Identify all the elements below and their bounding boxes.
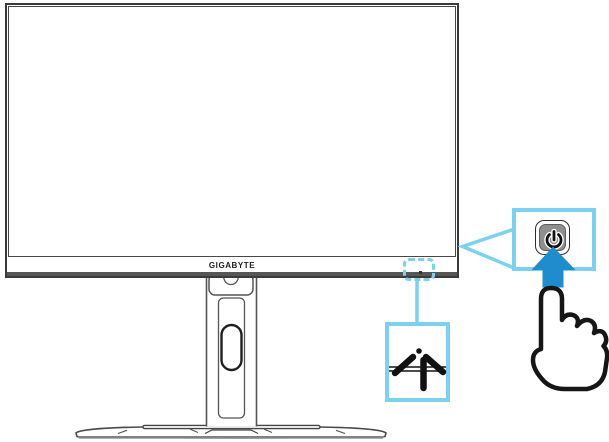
monitor-bottom-edge: [7, 272, 457, 277]
led-location-outline: [403, 258, 435, 281]
power-button-face: [539, 224, 566, 251]
led-indicator-icon: [389, 326, 446, 398]
pointing-hand-icon: [522, 284, 608, 396]
power-button: [535, 220, 570, 255]
cable-hole: [222, 325, 242, 370]
manual-illustration: GIGABYTE: [0, 0, 609, 442]
power-button-callout: [512, 208, 596, 271]
monitor-stand: [60, 268, 400, 442]
monitor-front: GIGABYTE: [5, 3, 459, 278]
monitor-screen: [8, 6, 456, 257]
brand-logo: GIGABYTE: [7, 261, 457, 270]
stand-neck: [207, 274, 257, 427]
power-icon: [540, 225, 568, 253]
led-indicator-callout: [385, 322, 450, 402]
stand-base: [76, 425, 386, 438]
power-led-dot: [419, 271, 422, 274]
